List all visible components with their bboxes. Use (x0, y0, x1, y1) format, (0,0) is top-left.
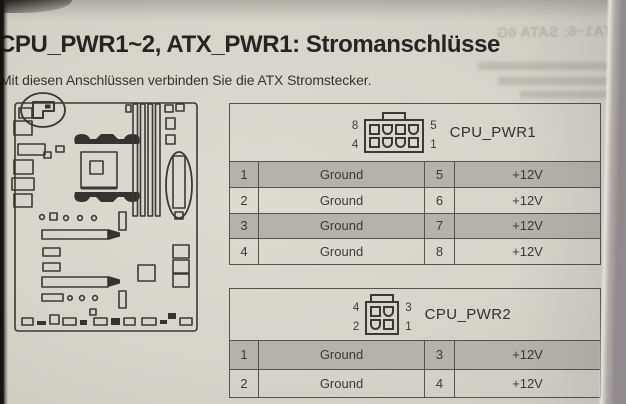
pin-number-cell: 5 (425, 162, 455, 187)
cmos-battery (138, 265, 155, 281)
pin-label: 1 (405, 321, 411, 333)
pin-icon (408, 124, 419, 135)
pin-number-cell: 1 (230, 341, 259, 369)
pin-number-cell: 6 (425, 188, 455, 213)
pin-number-cell: 8 (425, 239, 455, 264)
pin-numbers-right: 3 1 (405, 302, 411, 333)
pin-icon (395, 124, 406, 135)
table-row: 1 Ground 3 +12V (230, 341, 600, 369)
cpu-pwr1-header: 8 4 5 1 CPU_PWR1 (230, 104, 600, 162)
signal-cell: +12V (455, 239, 600, 264)
pin-icon (382, 124, 393, 135)
pcie-slot (42, 229, 120, 240)
pin-number-cell: 3 (425, 341, 455, 369)
table-row: 3 Ground 7 +12V (230, 213, 600, 239)
pin-icon (370, 306, 381, 317)
pin-label: 1 (430, 139, 436, 151)
pin-icon (370, 319, 381, 330)
cpu-pwr1-panel: 8 4 5 1 CPU_PWR1 1 Gr (229, 103, 601, 265)
connector-name: CPU_PWR1 (450, 124, 537, 141)
page-title: CPU_PWR1~2, ATX_PWR1: Stromanschlüsse (0, 31, 558, 59)
pin-icon (383, 306, 394, 317)
pin-numbers-right: 5 1 (430, 120, 436, 151)
cpu-socket (74, 134, 139, 202)
pin-icon (369, 124, 380, 135)
signal-cell: Ground (259, 239, 425, 264)
signal-cell: Ground (259, 162, 425, 187)
motherboard-diagram (2, 88, 212, 340)
photo-left-edge (0, 0, 8, 404)
cpu-pwr2-pin-table: 1 Ground 3 +12V 2 Ground 4 +12V (230, 341, 600, 397)
bleed-through-line (520, 91, 616, 98)
connector-8pin-diagram (364, 119, 424, 153)
pin-icon (383, 319, 394, 330)
connector-4pin-diagram (365, 301, 399, 335)
cpu-pwr1-pin-table: 1 Ground 5 +12V 2 Ground 6 +12V 3 Ground… (230, 162, 600, 264)
table-row: 2 Ground 6 +12V (230, 187, 600, 213)
connector-latch-tab (370, 294, 394, 303)
bleed-through-line (498, 77, 620, 85)
pin-number-cell: 1 (230, 162, 259, 187)
signal-cell: +12V (455, 188, 600, 213)
bleed-through-line (478, 62, 620, 70)
front-panel-headers (22, 309, 192, 325)
pin-label: 5 (430, 120, 436, 132)
signal-cell: Ground (259, 370, 425, 398)
pin-number-cell: 4 (425, 370, 455, 398)
manual-page: ATA1~6: SATA 6G CPU_PWR1~2, ATX_PWR1: St… (0, 0, 626, 404)
table-row: 1 Ground 5 +12V (230, 162, 600, 187)
pin-label: 3 (405, 302, 411, 314)
connector-latch-tab (382, 112, 406, 121)
signal-cell: +12V (455, 214, 600, 239)
pin-number-cell: 2 (230, 370, 259, 398)
pin-icon (369, 137, 380, 148)
pin-icon (408, 137, 419, 148)
signal-cell: +12V (455, 370, 600, 398)
pin-label: 4 (353, 302, 359, 314)
cpu-pwr2-header: 4 2 3 1 CPU_PWR2 (230, 289, 600, 341)
atx-pwr1-connector (173, 156, 185, 219)
pin-label: 2 (353, 321, 359, 333)
fan-headers (40, 213, 97, 220)
pin-number-cell: 4 (230, 239, 259, 264)
signal-cell: Ground (259, 188, 425, 213)
pin-icon (382, 137, 393, 148)
cpu-pwr2-panel: 4 2 3 1 CPU_PWR2 1 Ground 3 +12V (229, 288, 601, 398)
cpu-pwr-connector-glyph (33, 102, 54, 118)
sata-ports (173, 245, 189, 287)
pin-number-cell: 2 (230, 188, 259, 213)
page-subtitle: Mit diesen Anschlüssen verbinden Sie die… (0, 72, 371, 88)
table-row: 2 Ground 4 +12V (230, 369, 600, 398)
signal-cell: Ground (259, 214, 425, 239)
signal-cell: Ground (259, 341, 425, 369)
table-row: 4 Ground 8 +12V (230, 238, 600, 264)
connector-name: CPU_PWR2 (425, 306, 512, 323)
pin-number-cell: 7 (425, 214, 455, 239)
signal-cell: +12V (455, 341, 600, 369)
pin-number-cell: 3 (230, 214, 259, 239)
pcie-slot (42, 276, 120, 287)
pin-label: 8 (352, 120, 358, 132)
pin-numbers-left: 4 2 (353, 302, 359, 333)
pin-label: 4 (352, 139, 358, 151)
pin-numbers-left: 8 4 (352, 120, 358, 151)
pin-icon (395, 137, 406, 148)
signal-cell: +12V (455, 162, 600, 187)
